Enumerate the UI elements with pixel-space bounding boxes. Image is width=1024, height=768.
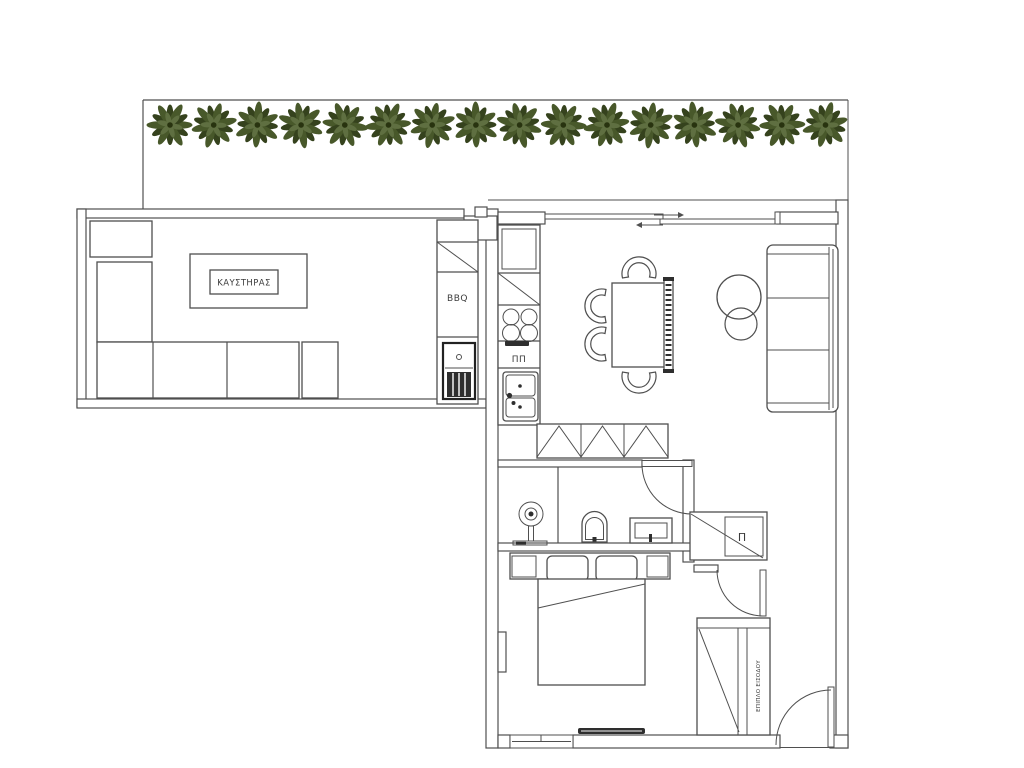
plant-row [147, 93, 853, 157]
sliding-door [545, 212, 780, 228]
grill-appliance [443, 343, 475, 399]
plant [491, 97, 547, 152]
coffee-table [717, 275, 761, 340]
faucet-icon [507, 393, 512, 398]
terrace-bench-vertical [97, 262, 152, 342]
toilet [582, 511, 607, 542]
top-wall-left-segment [498, 212, 545, 224]
kitchen-sink [503, 372, 538, 421]
plant [406, 98, 459, 152]
wall-basin [630, 518, 672, 543]
hall-closet [537, 424, 668, 458]
plant [797, 98, 853, 153]
terrace-room-bottom-wall [77, 399, 486, 408]
bathroom-top-wall [498, 460, 642, 467]
plant [234, 100, 282, 149]
bbq-counter: BBQ [437, 220, 478, 404]
plant [533, 94, 594, 155]
drain-icon [518, 405, 522, 409]
sofa [767, 245, 838, 412]
toilet-flush-icon [593, 537, 597, 542]
pillow [596, 556, 637, 581]
kitchen-counter: ΠΠ [498, 225, 540, 425]
floor-plan-page: ΚΑΥΣΤΗΡΑΣ BBQ [0, 0, 1024, 768]
bedroom-door-wall-stub [694, 565, 718, 572]
boiler-label: ΚΑΥΣΤΗΡΑΣ [217, 279, 270, 289]
plant [444, 94, 506, 156]
stove-controls [505, 341, 529, 346]
bedroom-door [717, 570, 766, 616]
wall-pillar-notch [498, 632, 506, 672]
dishwasher-label: ΠΠ [512, 355, 527, 365]
plant [710, 96, 767, 154]
door-leaf [642, 461, 692, 467]
dining-chair [622, 372, 656, 393]
floor-plan-drawing: ΚΑΥΣΤΗΡΑΣ BBQ [0, 0, 1024, 768]
pillow [547, 556, 588, 581]
boiler-unit: ΚΑΥΣΤΗΡΑΣ [190, 254, 307, 308]
pedestal-sink [513, 502, 547, 545]
door-swing-arc [776, 690, 831, 745]
terrace-cabinet [90, 221, 152, 257]
dining-table [612, 283, 665, 367]
sliding-panel-right [660, 219, 777, 224]
coffee-table-top [717, 275, 761, 319]
plant [270, 93, 334, 157]
washer-closet-outline [690, 512, 767, 560]
pedestal-stem [529, 526, 534, 541]
terrace-room-top-wall [77, 209, 464, 218]
terrace-bench-horizontal [97, 342, 299, 398]
sliding-door-jamb [775, 212, 780, 224]
plant [578, 95, 636, 153]
chimney-cap [475, 207, 487, 217]
entrance-wardrobe: ΕΠΙΠΛΟ ΕΙΣΟΔΟΥ [697, 618, 770, 735]
window [510, 735, 573, 748]
basin-tap-icon [649, 534, 652, 542]
dining-chair [585, 289, 606, 323]
sliding-panel-left [545, 214, 663, 219]
bottom-wall-middle-segment [573, 735, 780, 748]
bottom-wall-left-stub [498, 735, 510, 748]
radiator [578, 728, 645, 734]
top-wall-right-segment [777, 212, 838, 224]
plant [357, 94, 420, 157]
plant [665, 96, 725, 155]
dining-set [585, 257, 674, 393]
bed [538, 579, 645, 685]
left-exterior-wall [486, 209, 498, 748]
terrace-room-left-wall [77, 209, 86, 407]
dining-bench [663, 277, 674, 373]
bathroom-bottom-wall [498, 543, 694, 551]
door-swing-arc [717, 570, 763, 616]
drain-icon [518, 384, 522, 388]
plant [319, 100, 371, 150]
plant [751, 95, 812, 157]
bbq-label: BBQ [447, 294, 468, 304]
terrace-side-table [302, 342, 338, 398]
bathroom-fixtures [513, 461, 692, 546]
washer-closet: Π [690, 512, 767, 560]
dining-chair [585, 327, 606, 361]
plant [147, 103, 193, 148]
terrace-furniture: ΚΑΥΣΤΗΡΑΣ [90, 221, 338, 398]
dining-chair [622, 257, 656, 278]
headboard [510, 553, 670, 579]
door-leaf [828, 687, 834, 747]
washer-label: Π [738, 531, 746, 544]
faucet-icon [512, 401, 516, 405]
plant [621, 95, 681, 154]
entrance-furniture-label: ΕΠΙΠΛΟ ΕΙΣΟΔΟΥ [756, 660, 762, 712]
slide-direction-arrow-left [636, 222, 663, 228]
entrance-door [776, 687, 834, 747]
bedroom [510, 553, 670, 748]
door-leaf [760, 570, 766, 616]
sofa-outline [767, 245, 838, 412]
